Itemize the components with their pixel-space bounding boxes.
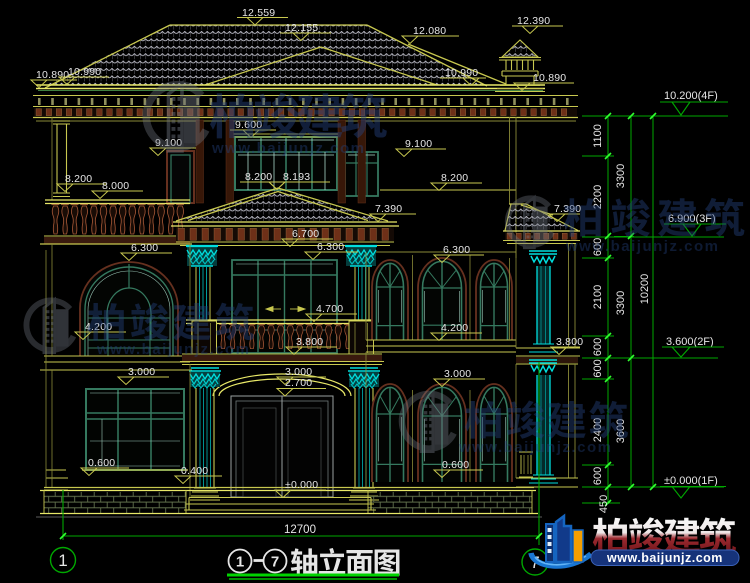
svg-text:3.600(2F): 3.600(2F) [666, 336, 714, 348]
svg-text:www.baijunjz.com: www.baijunjz.com [565, 238, 719, 255]
svg-text:12.390: 12.390 [517, 15, 550, 27]
svg-text:0.400: 0.400 [181, 465, 208, 477]
svg-text:6.300: 6.300 [443, 244, 470, 256]
svg-text:3.000: 3.000 [444, 368, 471, 380]
svg-text:600: 600 [592, 467, 604, 485]
svg-text:www.baijunjz.com: www.baijunjz.com [96, 341, 250, 358]
svg-text:10.990: 10.990 [445, 67, 478, 79]
svg-text:3300: 3300 [615, 164, 627, 188]
svg-text:6.300: 6.300 [131, 242, 158, 254]
svg-text:1: 1 [236, 554, 244, 571]
svg-text:12.155: 12.155 [285, 22, 318, 34]
svg-text:6.700: 6.700 [292, 228, 319, 240]
svg-text:6.300: 6.300 [317, 241, 344, 253]
svg-text:8.200: 8.200 [441, 172, 468, 184]
svg-text:10.890: 10.890 [36, 69, 69, 81]
svg-text:8.000: 8.000 [102, 180, 129, 192]
svg-text:10.990: 10.990 [68, 66, 101, 78]
svg-text:1100: 1100 [592, 124, 604, 148]
svg-text:9.100: 9.100 [405, 138, 432, 150]
svg-text:8.193: 8.193 [283, 171, 310, 183]
svg-text:8.200: 8.200 [65, 173, 92, 185]
svg-text:3300: 3300 [615, 291, 627, 315]
svg-text:600: 600 [592, 359, 604, 377]
svg-text:450: 450 [598, 495, 610, 513]
svg-text:10200: 10200 [639, 274, 651, 305]
svg-text:3.800: 3.800 [296, 336, 323, 348]
svg-text:0.600: 0.600 [88, 457, 115, 469]
svg-text:1: 1 [58, 551, 67, 570]
svg-text:www.baijunjz.com: www.baijunjz.com [211, 140, 365, 157]
svg-text:10.200(4F): 10.200(4F) [664, 90, 718, 102]
svg-text:www.baijunjz.com: www.baijunjz.com [458, 439, 612, 456]
svg-text:10.890: 10.890 [533, 72, 566, 84]
svg-text:7.390: 7.390 [375, 203, 402, 215]
svg-text:2100: 2100 [592, 285, 604, 309]
svg-text:3.800: 3.800 [556, 336, 583, 348]
svg-text:12.080: 12.080 [413, 25, 446, 37]
svg-text:www.baijunjz.com: www.baijunjz.com [606, 551, 723, 565]
svg-text:0.600: 0.600 [442, 459, 469, 471]
svg-text:12700: 12700 [284, 524, 316, 536]
svg-text:2.700: 2.700 [285, 377, 312, 389]
svg-text:±0.000(1F): ±0.000(1F) [664, 475, 718, 487]
svg-text:7: 7 [271, 554, 279, 571]
svg-text:4.200: 4.200 [441, 322, 468, 334]
svg-text:8.200: 8.200 [245, 171, 272, 183]
svg-text:±0.000: ±0.000 [285, 479, 318, 491]
svg-text:4.700: 4.700 [316, 303, 343, 315]
svg-text:3.000: 3.000 [128, 366, 155, 378]
svg-text:600: 600 [592, 338, 604, 356]
